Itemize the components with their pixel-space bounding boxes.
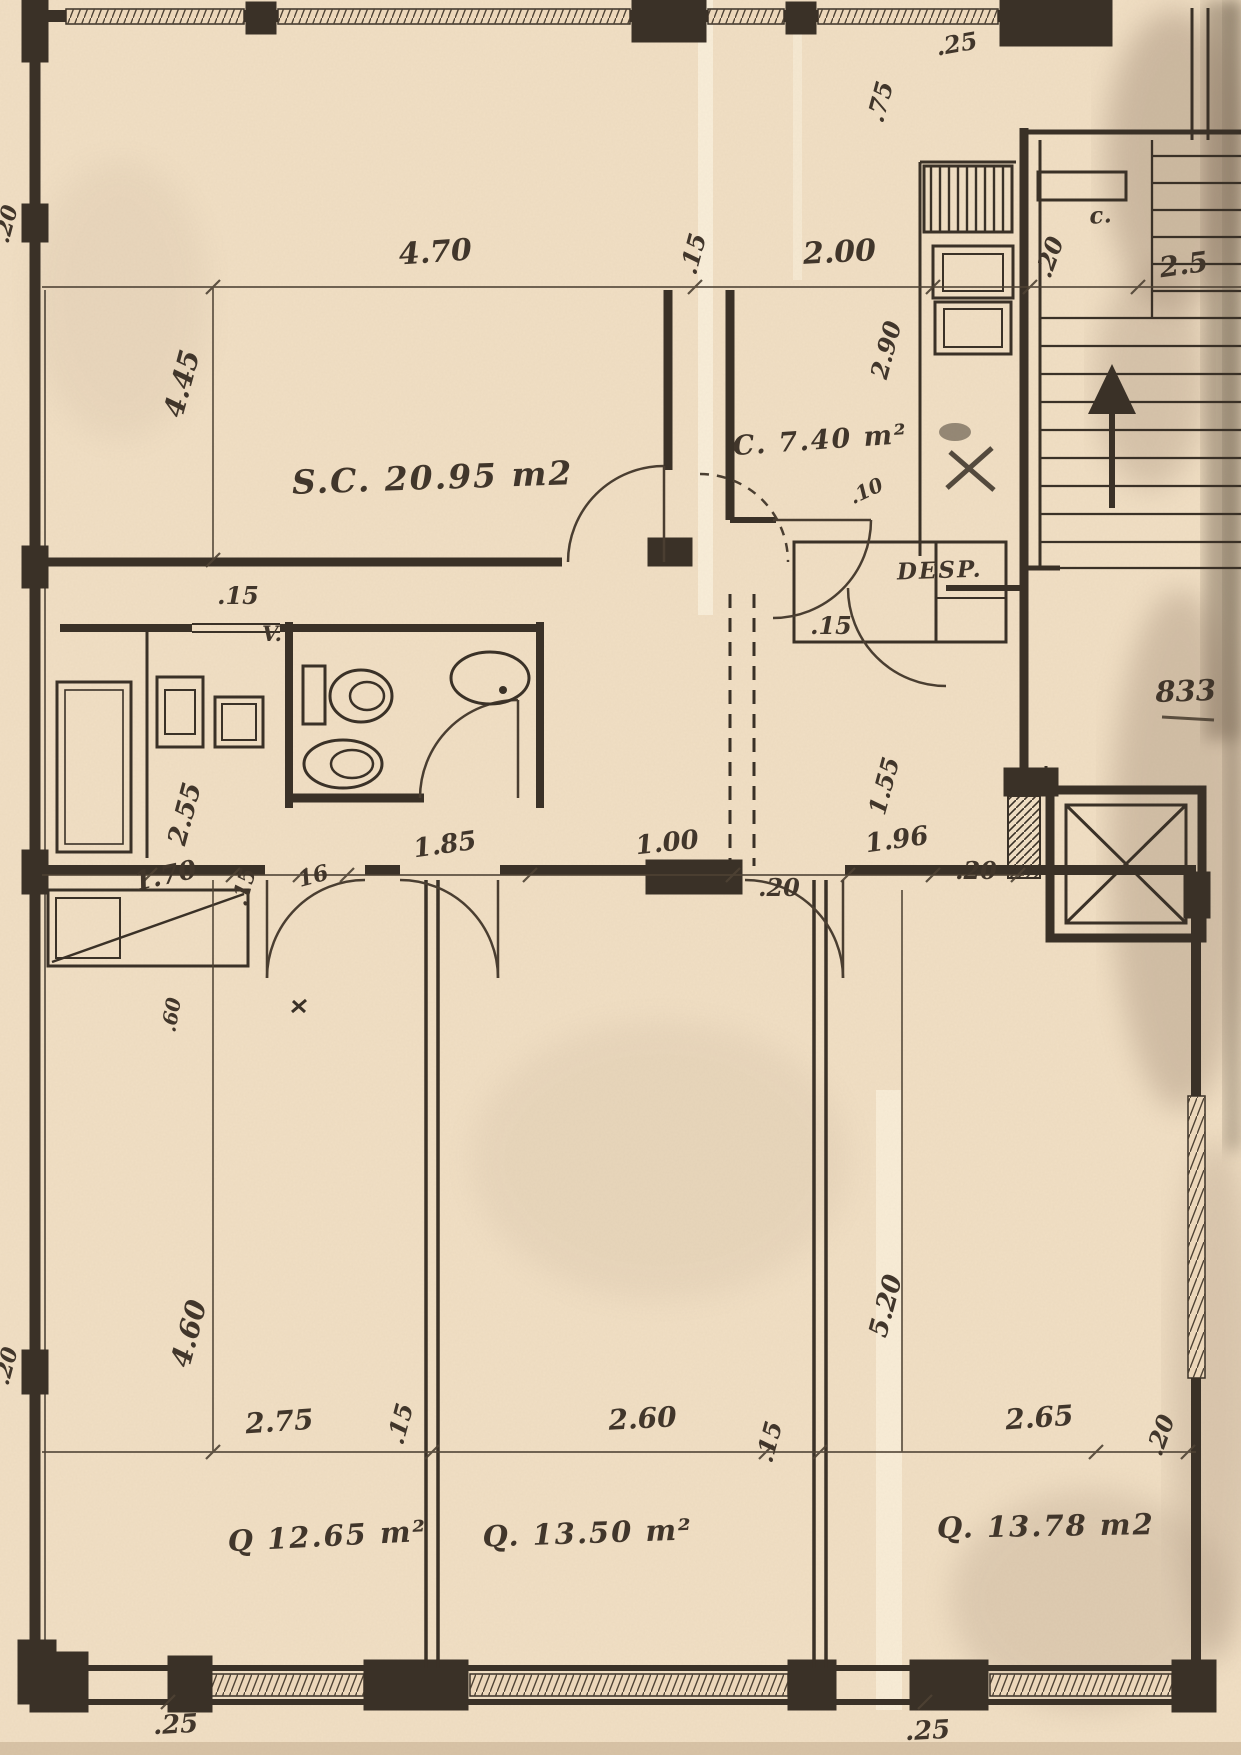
wall-block [646,860,742,894]
floor-plan-drawing: 4.70 .15 2.00 .25 .75 .20 2.5 4.45 2.90 … [0,0,1241,1755]
column [22,204,48,242]
window-bottom-3 [990,1674,1172,1696]
stair-number: 833 [1154,673,1217,709]
column [168,1656,212,1712]
column [364,1660,468,1710]
dim-label: .25 [152,1709,199,1741]
dim-label: .15 [217,581,259,610]
window-top-4 [818,9,998,24]
column [786,2,816,34]
room-label-bedroom3: Q. 13.78 m2 [937,1507,1155,1545]
dim-label: 2.65 [1003,1399,1074,1437]
basin-drain [499,686,507,694]
column [788,1660,836,1710]
window-top-1 [66,9,244,24]
column [632,0,706,42]
column [30,1652,88,1712]
floor-plan-scan: 4.70 .15 2.00 .25 .75 .20 2.5 4.45 2.90 … [0,0,1241,1755]
dim-label: .20 [955,856,997,885]
window-right [1188,1096,1205,1378]
ink-blot [939,423,971,441]
dim-label: 2.5 [1156,245,1210,285]
column [246,2,276,34]
dim-label: .20 [758,873,800,902]
dim-label: 2.75 [243,1403,314,1441]
sink-hatched [924,166,1012,232]
window-bottom-2 [470,1674,788,1696]
dim-label: 4.70 [398,233,473,273]
dim-label: .15 [810,611,852,640]
dim-label: 2.60 [607,1400,678,1437]
dim-label: 2.00 [801,233,877,272]
window-top-2 [278,9,630,24]
dim-label: .25 [904,1715,951,1747]
vent-label: V. [262,621,282,646]
hatched-pilaster [1008,796,1040,878]
window-bottom-1 [206,1674,364,1696]
window-top-3 [708,9,784,24]
closet-label: c. [1088,201,1112,230]
column [22,546,48,588]
column [910,1660,988,1710]
room-label-pantry: DESP. [895,556,982,586]
column [1000,0,1112,46]
column [22,0,48,62]
column [22,1350,48,1394]
